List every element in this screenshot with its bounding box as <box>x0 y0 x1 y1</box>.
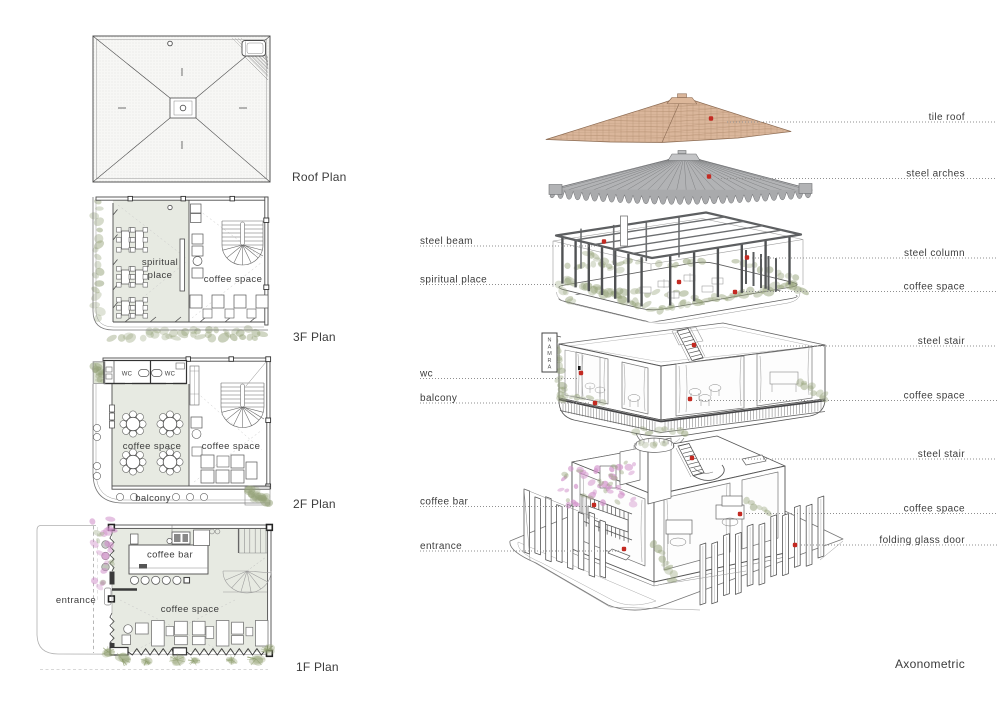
svg-text:Roof Plan: Roof Plan <box>292 170 347 184</box>
svg-text:coffee space: coffee space <box>202 441 261 452</box>
svg-text:spiritual: spiritual <box>142 257 178 268</box>
svg-text:1F Plan: 1F Plan <box>296 660 339 674</box>
svg-text:WC: WC <box>122 372 133 378</box>
svg-text:coffee space: coffee space <box>204 274 263 285</box>
svg-text:WC: WC <box>165 372 176 378</box>
svg-text:steel stair: steel stair <box>918 336 965 347</box>
svg-text:coffee space: coffee space <box>904 504 965 515</box>
svg-text:steel arches: steel arches <box>906 169 965 180</box>
svg-text:coffee space: coffee space <box>904 282 965 293</box>
svg-text:balcony: balcony <box>135 493 171 504</box>
svg-text:M: M <box>547 351 552 357</box>
svg-text:entrance: entrance <box>56 595 96 606</box>
svg-text:tile roof: tile roof <box>929 112 965 123</box>
svg-text:R: R <box>548 358 552 364</box>
svg-text:coffee space: coffee space <box>123 441 182 452</box>
svg-text:A: A <box>548 344 552 350</box>
svg-text:wc: wc <box>419 369 433 380</box>
svg-text:coffee bar: coffee bar <box>420 497 469 508</box>
svg-text:steel beam: steel beam <box>420 236 473 247</box>
svg-text:steel stair: steel stair <box>918 449 965 460</box>
svg-text:3F Plan: 3F Plan <box>293 330 336 344</box>
svg-text:A: A <box>548 365 552 371</box>
svg-text:2F Plan: 2F Plan <box>293 497 336 511</box>
svg-text:steel column: steel column <box>904 248 965 259</box>
svg-text:entrance: entrance <box>420 541 462 552</box>
svg-text:coffee bar: coffee bar <box>147 550 193 561</box>
svg-text:place: place <box>148 270 173 281</box>
svg-text:coffee space: coffee space <box>161 604 220 615</box>
svg-text:N: N <box>548 338 552 344</box>
svg-text:spiritual place: spiritual place <box>420 275 487 286</box>
svg-text:balcony: balcony <box>420 393 457 404</box>
svg-text:folding glass door: folding glass door <box>879 535 965 546</box>
svg-text:coffee space: coffee space <box>904 391 965 402</box>
svg-text:Axonometric: Axonometric <box>895 657 965 671</box>
